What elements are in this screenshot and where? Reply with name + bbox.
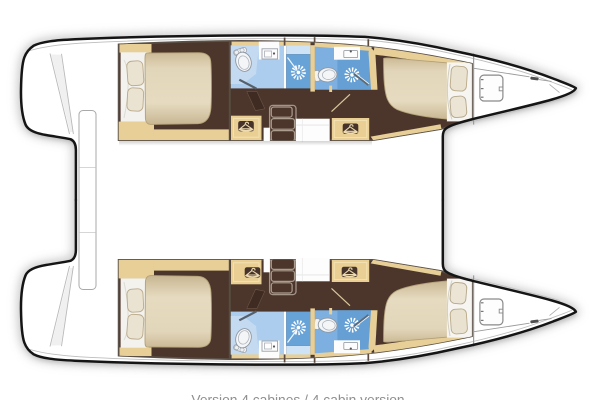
svg-text:Version 4 cabines / 4 cabin ve: Version 4 cabines / 4 cabin version — [191, 393, 404, 400]
